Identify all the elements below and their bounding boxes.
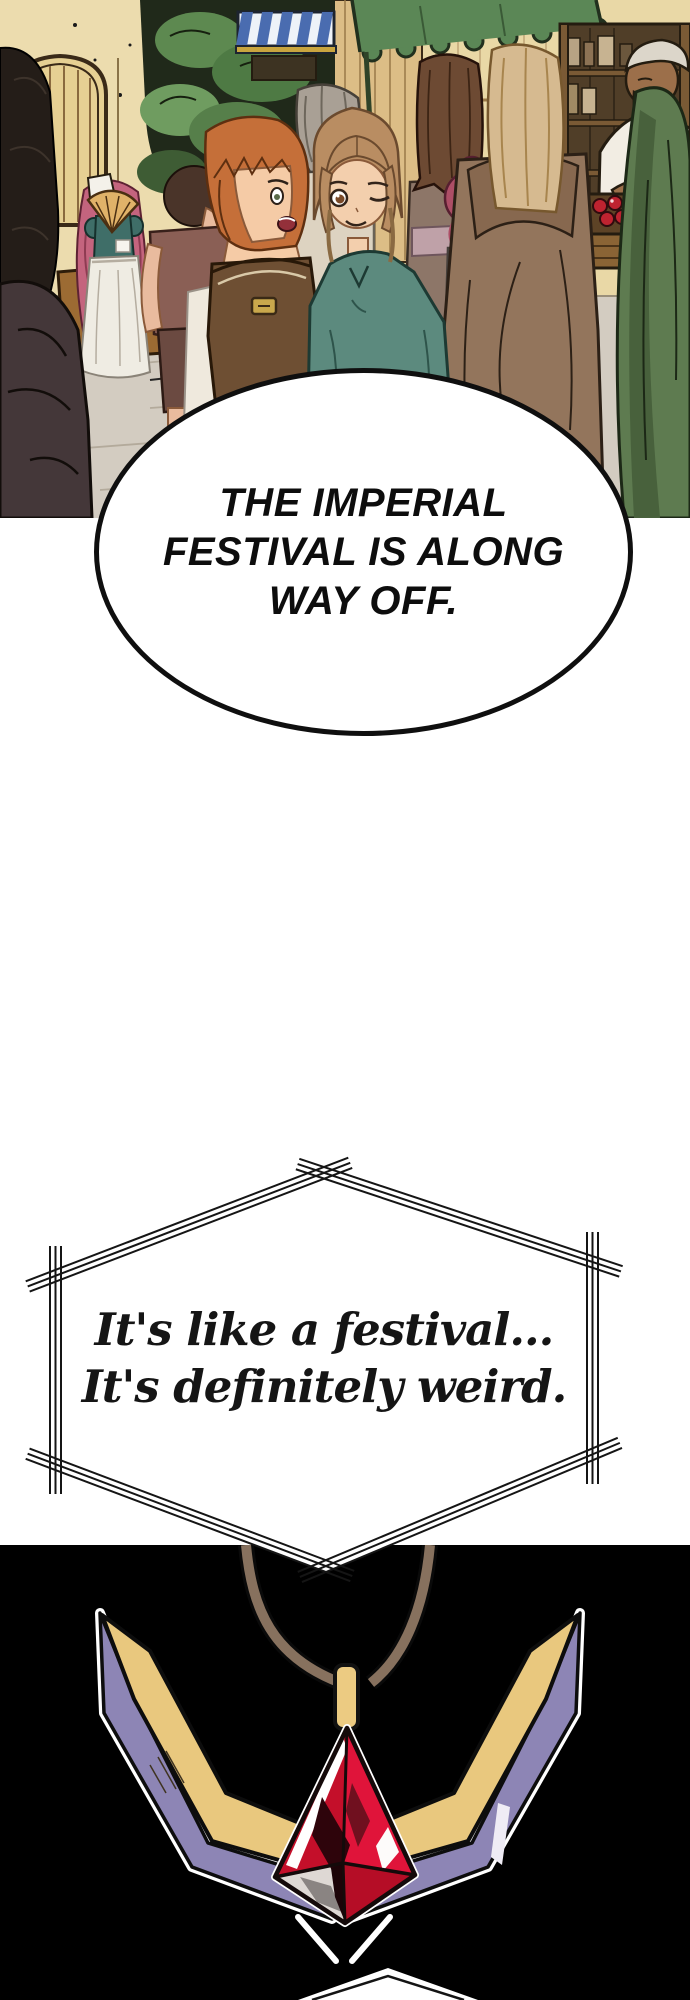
caption-line: It's definitely weird. bbox=[50, 1358, 598, 1415]
speech-line: FESTIVAL IS ALONG bbox=[163, 528, 564, 577]
pendant-bail bbox=[335, 1665, 358, 1729]
maid bbox=[77, 174, 150, 378]
webtoon-page: THE IMPERIAL FESTIVAL IS ALONG WAY OFF. bbox=[0, 0, 690, 2000]
speech-line: THE IMPERIAL bbox=[163, 479, 564, 528]
caption-panel: It's like a festival... It's definitely … bbox=[50, 1301, 598, 1415]
speech-bubble-text: THE IMPERIAL FESTIVAL IS ALONG WAY OFF. bbox=[163, 479, 564, 626]
pendant-art bbox=[0, 1545, 690, 2000]
speech-line: WAY OFF. bbox=[163, 577, 564, 626]
caption-line: It's like a festival... bbox=[50, 1301, 598, 1358]
speech-bubble: THE IMPERIAL FESTIVAL IS ALONG WAY OFF. bbox=[94, 368, 633, 736]
green-cloak-figure bbox=[617, 88, 690, 518]
pendant-panel bbox=[0, 1545, 690, 2000]
